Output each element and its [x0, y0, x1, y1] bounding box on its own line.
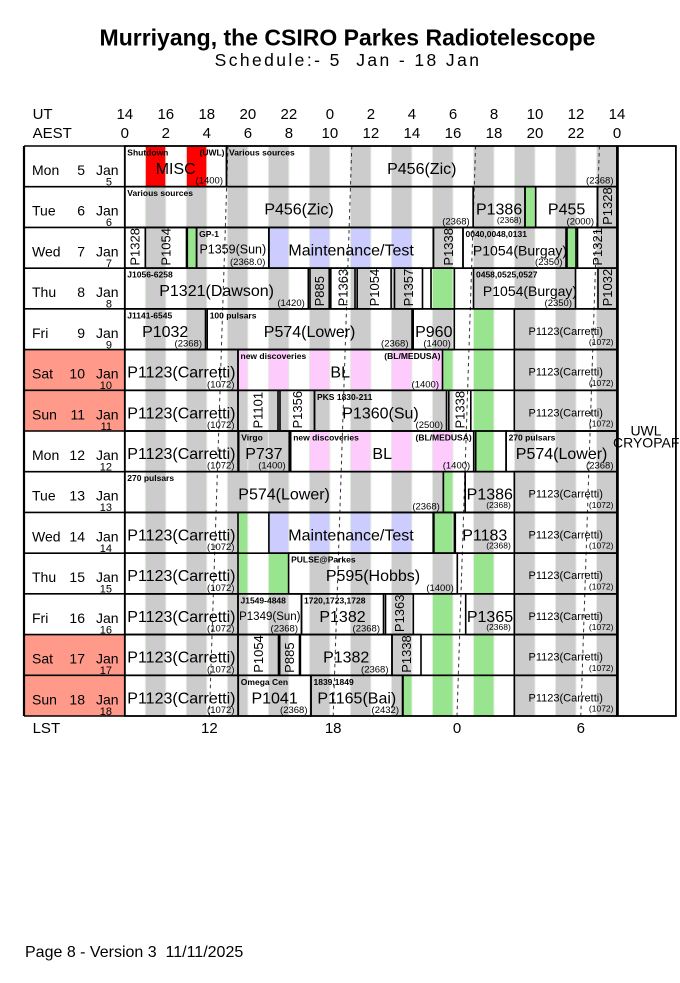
svg-text:11: 11	[101, 421, 112, 433]
svg-text:7: 7	[106, 258, 112, 270]
svg-text:9: 9	[77, 325, 85, 341]
svg-text:(1072): (1072)	[589, 500, 614, 510]
svg-text:P1123(Carretti): P1123(Carretti)	[529, 407, 603, 419]
svg-text:P1356: P1356	[290, 391, 305, 429]
svg-text:CRYOPAF: CRYOPAF	[613, 435, 679, 451]
svg-text:1839,1849: 1839,1849	[314, 677, 354, 687]
svg-text:4: 4	[203, 125, 211, 142]
svg-text:14: 14	[116, 106, 133, 123]
svg-text:270 pulsars: 270 pulsars	[127, 473, 174, 483]
svg-text:P1338: P1338	[399, 635, 414, 673]
svg-text:new discoveries: new discoveries	[241, 351, 307, 361]
svg-text:Sun: Sun	[32, 691, 57, 707]
svg-text:P1321: P1321	[590, 228, 605, 266]
svg-text:5: 5	[106, 177, 112, 189]
svg-text:(2350): (2350)	[535, 257, 562, 268]
svg-text:(1072): (1072)	[589, 378, 614, 388]
svg-text:P1338: P1338	[441, 228, 456, 266]
svg-text:14: 14	[69, 528, 85, 544]
svg-text:P1123(Carretti): P1123(Carretti)	[529, 326, 603, 338]
svg-text:100 pulsars: 100 pulsars	[210, 310, 257, 320]
svg-text:P574(Lower): P574(Lower)	[238, 487, 330, 504]
svg-text:10: 10	[322, 125, 339, 142]
svg-text:Maintenance/Test: Maintenance/Test	[288, 527, 414, 544]
svg-text:P1054: P1054	[251, 635, 266, 673]
svg-text:(1072): (1072)	[207, 624, 234, 635]
svg-text:13: 13	[69, 488, 85, 504]
svg-text:Sat: Sat	[32, 651, 53, 667]
svg-text:14: 14	[404, 125, 421, 142]
svg-text:18: 18	[486, 125, 503, 142]
svg-text:P595(Hobbs): P595(Hobbs)	[326, 568, 420, 585]
svg-text:0: 0	[453, 720, 461, 737]
svg-text:Various sources: Various sources	[229, 148, 295, 158]
svg-text:(1072): (1072)	[589, 581, 614, 591]
svg-text:P456(Zic): P456(Zic)	[387, 161, 456, 178]
svg-text:20: 20	[527, 125, 544, 142]
svg-text:P1054(Burgay): P1054(Burgay)	[473, 242, 567, 258]
svg-text:J1141-6545: J1141-6545	[127, 310, 172, 320]
svg-text:Omega Cen: Omega Cen	[241, 677, 288, 687]
svg-text:5: 5	[77, 162, 85, 178]
svg-text:14: 14	[100, 543, 112, 555]
svg-text:Mon: Mon	[32, 162, 59, 178]
svg-text:P1328: P1328	[600, 187, 615, 225]
svg-text:(2432): (2432)	[372, 705, 399, 716]
svg-text:(2368): (2368)	[586, 176, 613, 187]
svg-text:(1072): (1072)	[207, 542, 234, 553]
svg-text:16: 16	[100, 624, 112, 636]
svg-text:6: 6	[106, 217, 112, 229]
svg-text:P885: P885	[312, 276, 327, 306]
svg-text:(1072): (1072)	[207, 379, 234, 390]
svg-text:16: 16	[69, 610, 85, 626]
svg-text:(1072): (1072)	[589, 419, 614, 429]
svg-text:Thu: Thu	[32, 569, 56, 585]
svg-text:UT: UT	[33, 106, 53, 123]
svg-text:10: 10	[69, 366, 85, 382]
svg-text:(BL/MEDUSA): (BL/MEDUSA)	[415, 433, 471, 443]
svg-text:270 pulsars: 270 pulsars	[509, 433, 556, 443]
svg-text:13: 13	[100, 502, 112, 514]
svg-text:(1420): (1420)	[277, 298, 304, 309]
svg-text:MISC: MISC	[156, 161, 196, 178]
svg-text:P1357: P1357	[401, 269, 416, 307]
svg-text:P1321(Dawson): P1321(Dawson)	[159, 283, 274, 300]
svg-text:12: 12	[69, 447, 85, 463]
svg-text:6: 6	[577, 720, 585, 737]
svg-text:BL: BL	[330, 365, 350, 382]
svg-text:8: 8	[490, 106, 498, 123]
svg-text:(1400): (1400)	[258, 461, 285, 472]
svg-text:P574(Lower): P574(Lower)	[264, 324, 356, 341]
svg-text:15: 15	[69, 569, 85, 585]
svg-text:2: 2	[367, 106, 375, 123]
svg-text:14: 14	[609, 106, 626, 123]
svg-text:P1123(Carretti): P1123(Carretti)	[529, 652, 603, 664]
svg-text:10: 10	[527, 106, 544, 123]
svg-text:P1032: P1032	[600, 269, 615, 307]
svg-text:12: 12	[100, 462, 112, 474]
svg-text:PKS 1830-211: PKS 1830-211	[317, 392, 373, 402]
svg-text:18: 18	[100, 706, 112, 718]
svg-text:12: 12	[568, 106, 585, 123]
svg-text:15: 15	[100, 584, 112, 596]
svg-text:Page 8 - Version 3 11/11/2025: Page 8 - Version 3 11/11/2025	[25, 944, 243, 961]
svg-text:Various sources: Various sources	[127, 188, 193, 198]
svg-text:(UWL): (UWL)	[199, 148, 224, 158]
svg-text:(1400): (1400)	[412, 379, 439, 390]
svg-text:(1072): (1072)	[207, 461, 234, 472]
svg-text:(1072): (1072)	[589, 663, 614, 673]
svg-text:(2500): (2500)	[416, 420, 443, 431]
svg-text:(BL/MEDUSA): (BL/MEDUSA)	[384, 351, 440, 361]
svg-text:J1549-4848: J1549-4848	[241, 595, 287, 605]
svg-text:8: 8	[77, 284, 85, 300]
svg-text:(1072): (1072)	[589, 622, 614, 632]
svg-text:(1072): (1072)	[207, 664, 234, 675]
svg-text:Tue: Tue	[32, 488, 56, 504]
svg-text:P1123(Carretti): P1123(Carretti)	[529, 489, 603, 501]
svg-text:(2368): (2368)	[381, 339, 408, 350]
svg-text:GP-1: GP-1	[199, 229, 219, 239]
svg-text:Murriyang, the CSIRO Parkes Ra: Murriyang, the CSIRO Parkes Radiotelesco…	[100, 25, 596, 51]
svg-text:Shutdown: Shutdown	[127, 148, 168, 158]
svg-text:(2368): (2368)	[271, 624, 298, 635]
svg-text:Wed: Wed	[32, 528, 61, 544]
svg-text:6: 6	[244, 125, 252, 142]
svg-text:P1360(Su): P1360(Su)	[342, 405, 419, 422]
svg-text:0: 0	[613, 125, 621, 142]
svg-text:(2368): (2368)	[486, 622, 511, 632]
svg-text:(2350): (2350)	[545, 298, 572, 309]
svg-text:J1056-6258: J1056-6258	[127, 270, 173, 280]
svg-text:new discoveries: new discoveries	[293, 433, 359, 443]
svg-text:P1359(Sun): P1359(Sun)	[199, 242, 266, 256]
svg-text:(2368): (2368)	[175, 339, 202, 350]
svg-text:Schedule:- 5 Jan - 18 Jan: Schedule:- 5 Jan - 18 Jan	[215, 50, 482, 70]
svg-text:(1072): (1072)	[207, 420, 234, 431]
svg-text:20: 20	[240, 106, 257, 123]
svg-text:P1349(Sun): P1349(Sun)	[239, 611, 301, 623]
svg-text:(1400): (1400)	[443, 461, 470, 472]
svg-text:P1363: P1363	[392, 595, 407, 633]
svg-text:1720,1723,1728: 1720,1723,1728	[304, 595, 366, 605]
svg-text:18: 18	[198, 106, 215, 123]
svg-text:8: 8	[285, 125, 293, 142]
svg-text:Thu: Thu	[32, 284, 56, 300]
svg-text:Wed: Wed	[32, 243, 61, 259]
svg-text:PULSE@Parkes: PULSE@Parkes	[291, 555, 356, 565]
svg-text:P1101: P1101	[251, 392, 266, 429]
svg-text:9: 9	[106, 339, 112, 351]
svg-text:(2368): (2368)	[586, 461, 613, 472]
svg-text:(1072): (1072)	[207, 705, 234, 716]
svg-text:(2368.0): (2368.0)	[230, 257, 265, 268]
svg-text:(2368): (2368)	[486, 541, 511, 551]
svg-text:18: 18	[69, 691, 85, 707]
svg-text:16: 16	[157, 106, 174, 123]
svg-text:0: 0	[121, 125, 129, 142]
svg-text:(2000): (2000)	[567, 216, 594, 227]
svg-text:(1072): (1072)	[589, 704, 614, 714]
svg-text:4: 4	[408, 106, 416, 123]
svg-text:P1054: P1054	[159, 228, 174, 266]
svg-text:Sun: Sun	[32, 406, 57, 422]
svg-text:11: 11	[70, 406, 85, 422]
svg-text:6: 6	[77, 203, 85, 219]
svg-text:P1338: P1338	[452, 391, 467, 429]
svg-text:Fri: Fri	[32, 610, 48, 626]
svg-text:Fri: Fri	[32, 325, 48, 341]
svg-text:(2368): (2368)	[497, 215, 522, 225]
svg-text:P885: P885	[282, 642, 297, 672]
svg-text:17: 17	[69, 651, 85, 667]
svg-text:(2368): (2368)	[280, 705, 307, 716]
svg-text:18: 18	[325, 720, 342, 737]
svg-text:(1400): (1400)	[196, 176, 223, 187]
svg-text:Virgo: Virgo	[241, 433, 263, 443]
svg-text:P1328: P1328	[128, 228, 143, 266]
svg-text:2: 2	[162, 125, 170, 142]
svg-text:0: 0	[326, 106, 334, 123]
svg-text:LST: LST	[33, 720, 61, 737]
svg-text:6: 6	[449, 106, 457, 123]
svg-text:Tue: Tue	[32, 203, 56, 219]
svg-text:17: 17	[100, 665, 112, 677]
svg-text:P1363: P1363	[336, 269, 351, 307]
svg-text:(2368): (2368)	[412, 501, 439, 512]
svg-text:Mon: Mon	[32, 447, 59, 463]
svg-text:P1123(Carretti): P1123(Carretti)	[529, 611, 603, 623]
svg-text:P456(Zic): P456(Zic)	[264, 202, 333, 219]
svg-text:(2368): (2368)	[442, 216, 469, 227]
svg-text:P1054(Burgay): P1054(Burgay)	[483, 283, 577, 299]
svg-text:22: 22	[281, 106, 298, 123]
svg-text:P1123(Carretti): P1123(Carretti)	[529, 692, 603, 704]
svg-text:0458,0525,0527: 0458,0525,0527	[476, 270, 538, 280]
svg-text:(1400): (1400)	[426, 583, 453, 594]
svg-text:P1054: P1054	[367, 269, 382, 307]
svg-text:(2368): (2368)	[353, 624, 380, 635]
svg-text:7: 7	[77, 243, 85, 259]
svg-text:Sat: Sat	[32, 366, 53, 382]
svg-text:(1072): (1072)	[207, 583, 234, 594]
svg-text:Maintenance/Test: Maintenance/Test	[288, 242, 414, 259]
svg-text:AEST: AEST	[33, 125, 72, 142]
svg-text:(2368): (2368)	[361, 664, 388, 675]
svg-text:12: 12	[201, 720, 218, 737]
svg-text:10: 10	[100, 380, 112, 392]
svg-text:(2368): (2368)	[486, 500, 511, 510]
svg-text:(1400): (1400)	[423, 339, 450, 350]
svg-text:Jan: Jan	[96, 284, 119, 300]
svg-text:12: 12	[363, 125, 380, 142]
svg-text:P1123(Carretti): P1123(Carretti)	[529, 367, 603, 379]
svg-text:(1072): (1072)	[589, 337, 614, 347]
svg-text:BL: BL	[372, 446, 392, 463]
svg-text:0040,0048,0131: 0040,0048,0131	[466, 229, 528, 239]
svg-text:P1123(Carretti): P1123(Carretti)	[529, 529, 603, 541]
svg-text:(1072): (1072)	[589, 541, 614, 551]
svg-text:Jan: Jan	[96, 569, 119, 585]
svg-text:8: 8	[106, 299, 112, 311]
svg-text:16: 16	[445, 125, 462, 142]
svg-text:22: 22	[568, 125, 585, 142]
svg-text:P1123(Carretti): P1123(Carretti)	[529, 570, 603, 582]
